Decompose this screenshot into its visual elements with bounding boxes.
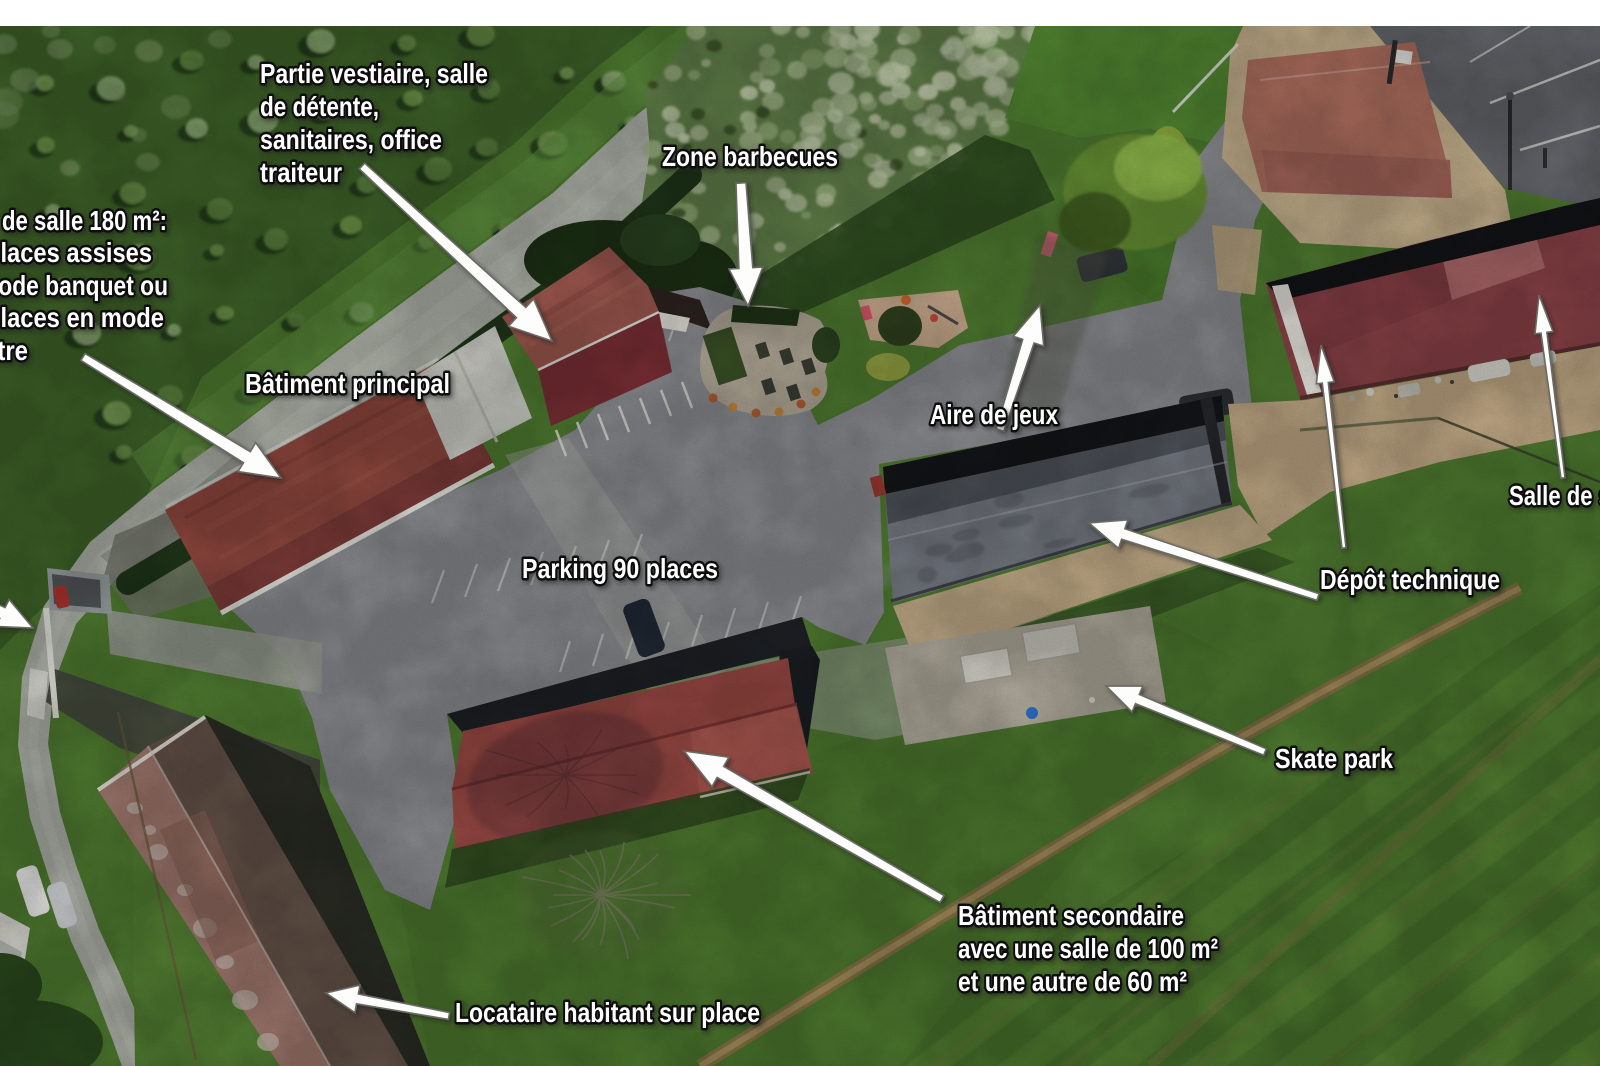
svg-text:Skate park: Skate park (1275, 743, 1393, 774)
svg-text:Parking 90 places: Parking 90 places (522, 553, 718, 584)
svg-text:Bâtiment secondaire: Bâtiment secondaire (958, 900, 1184, 931)
svg-text:sanitaires, office: sanitaires, office (260, 124, 442, 155)
svg-text:traiteur: traiteur (260, 157, 342, 188)
svg-text:avec une salle de 100 m²: avec une salle de 100 m² (958, 933, 1218, 964)
svg-text:et une autre de 60 m²: et une autre de 60 m² (958, 966, 1187, 997)
svg-text:Bâtiment principal: Bâtiment principal (245, 368, 450, 399)
svg-text:Zone barbecues: Zone barbecues (662, 141, 838, 172)
svg-text:théâtre: théâtre (0, 335, 28, 366)
svg-text:Aire de jeux: Aire de jeux (930, 399, 1058, 430)
svg-text:Salle de s: Salle de s (1509, 480, 1600, 511)
svg-text:de salle 180 m²:: de salle 180 m²: (2, 205, 167, 236)
svg-text:Dépôt technique: Dépôt technique (1320, 564, 1500, 595)
svg-text:Partie vestiaire, salle: Partie vestiaire, salle (260, 58, 488, 89)
svg-text:de détente,: de détente, (260, 91, 379, 122)
svg-text:Locataire habitant sur place: Locataire habitant sur place (455, 997, 760, 1028)
svg-text:mode banquet ou: mode banquet ou (0, 270, 168, 301)
svg-text:places en mode: places en mode (0, 302, 164, 333)
svg-text:places assises: places assises (0, 237, 152, 268)
